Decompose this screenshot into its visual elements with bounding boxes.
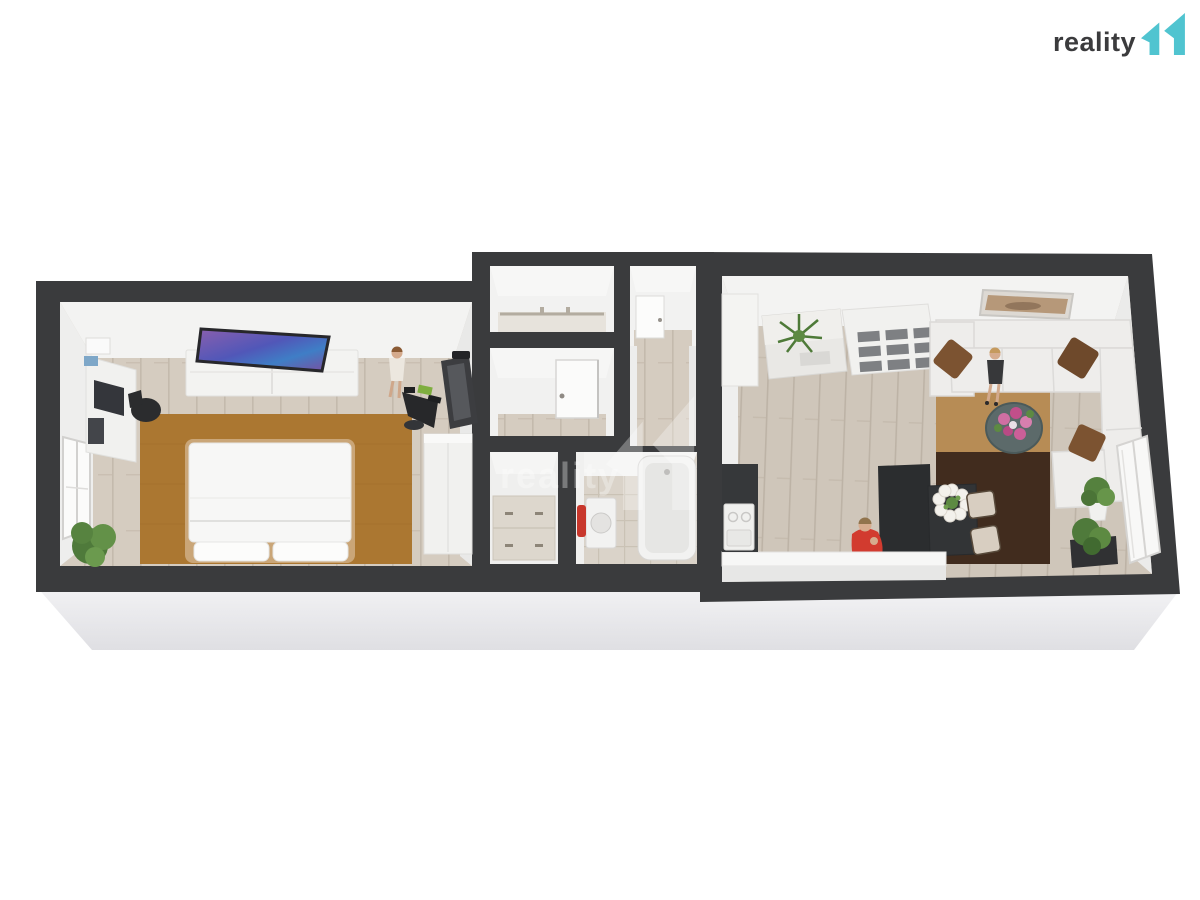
watermark-text: reality [500, 455, 620, 496]
kitchen-island [878, 464, 932, 562]
closet-room [490, 266, 614, 332]
entry-door [636, 296, 664, 338]
living-kitchen [722, 276, 1160, 582]
stove [724, 504, 754, 550]
wall-art [980, 290, 1073, 319]
floorplan-render: reality reality [0, 0, 1200, 900]
pc-tower [88, 418, 104, 444]
interior-door [556, 360, 598, 418]
dining-chair [966, 490, 996, 519]
double-bed [185, 439, 355, 563]
dining-chair [970, 525, 1001, 555]
bedroom [60, 302, 478, 567]
tall-cabinet [722, 294, 758, 386]
pillow [194, 542, 269, 561]
desk-item [84, 356, 98, 366]
cube-shelving [842, 304, 938, 375]
hall-and-bath [490, 266, 697, 564]
logo-text: reality [1053, 27, 1136, 57]
brand-logo: reality [1053, 13, 1185, 57]
printer [86, 338, 110, 354]
counter-dark-section [722, 464, 758, 552]
round-coffee-table [986, 403, 1042, 453]
door-handle [560, 394, 565, 399]
logo-mark-11-icon [1141, 13, 1185, 55]
door-handle [658, 318, 662, 322]
washing-machine [586, 498, 616, 548]
red-towel [577, 505, 586, 537]
base-slab-left [36, 586, 700, 650]
pillow [273, 542, 348, 561]
entry-room [630, 266, 696, 346]
kitchen-counter [722, 552, 946, 582]
inner-room [490, 348, 614, 436]
wardrobe [424, 434, 472, 554]
